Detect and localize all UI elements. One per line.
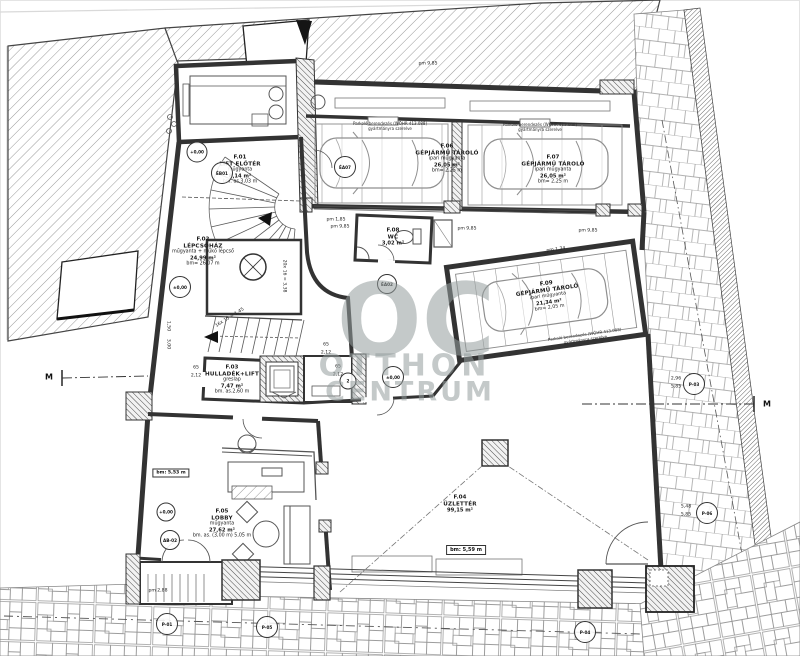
retail-height-box: bm: 5,59 m <box>446 545 486 555</box>
section-label-left: M <box>45 373 53 382</box>
lobby-height-box: bm: 5,53 m <box>152 469 189 478</box>
neighbor-building-left <box>8 28 178 341</box>
car-2 <box>484 133 608 195</box>
storefront-pillar-1 <box>222 560 260 600</box>
floor-plan-drawing <box>0 0 800 656</box>
floor-plan-canvas: F.01 LIFT ELŐTÉR műgyanta 8,14 m² bm. as… <box>0 0 800 656</box>
lightwell-left <box>57 251 138 319</box>
storefront-pillar-3 <box>578 570 612 608</box>
section-label-right: M <box>763 400 771 409</box>
building-footprint <box>136 57 662 590</box>
retail-pillar <box>482 440 508 466</box>
storefront-pillar-2 <box>314 566 330 600</box>
car-1 <box>320 132 444 194</box>
